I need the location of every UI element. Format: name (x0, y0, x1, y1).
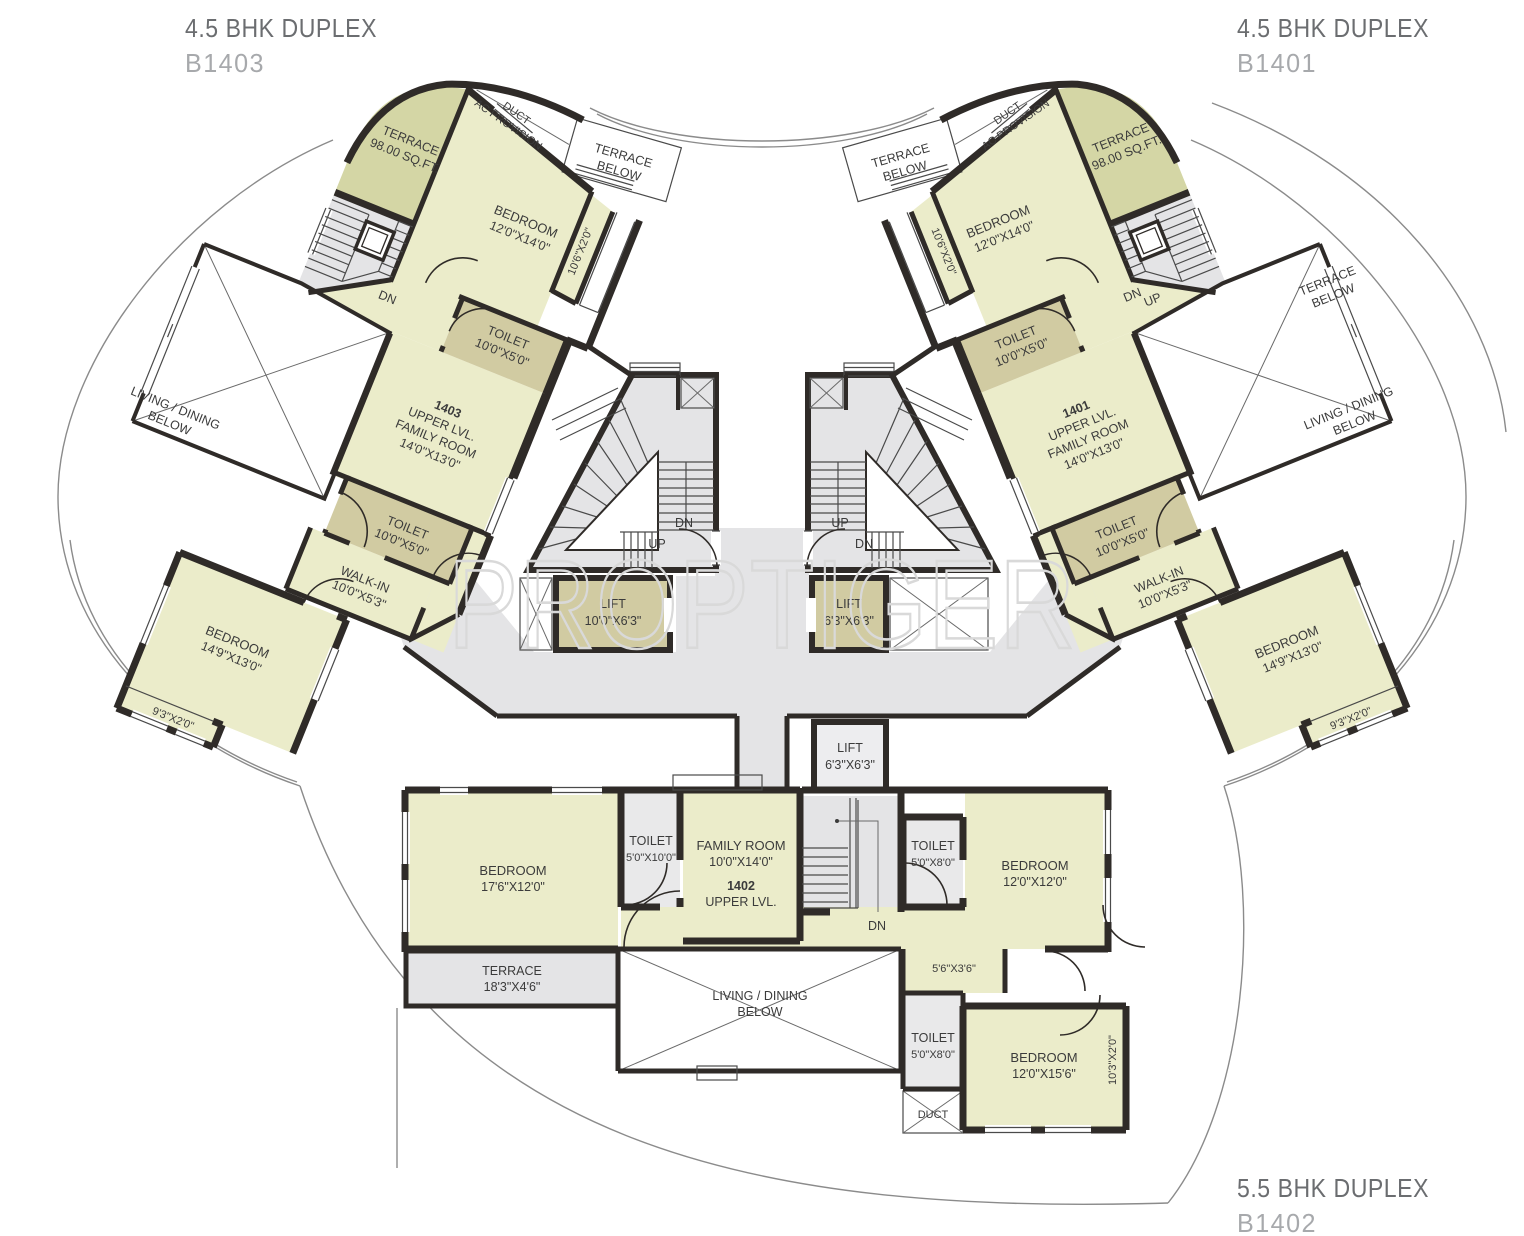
svg-text:DUCT: DUCT (918, 1109, 949, 1121)
svg-text:DN: DN (868, 919, 886, 933)
svg-text:UP: UP (831, 516, 848, 530)
svg-text:12'0"X15'6": 12'0"X15'6" (1012, 1067, 1076, 1081)
svg-text:DN: DN (675, 516, 693, 530)
svg-text:TOILET: TOILET (911, 1031, 955, 1045)
svg-text:5'0"X10'0": 5'0"X10'0" (626, 852, 676, 864)
svg-text:5'0"X8'0": 5'0"X8'0" (911, 857, 955, 869)
svg-text:PROPTIGER: PROPTIGER (448, 534, 1076, 675)
svg-text:5'0"X8'0": 5'0"X8'0" (911, 1049, 955, 1061)
svg-text:FAMILY ROOM: FAMILY ROOM (696, 838, 785, 853)
svg-text:17'6"X12'0": 17'6"X12'0" (481, 880, 545, 894)
svg-text:4.5 BHK DUPLEX: 4.5 BHK DUPLEX (185, 13, 377, 43)
svg-text:4.5 BHK DUPLEX: 4.5 BHK DUPLEX (1237, 13, 1429, 43)
svg-text:B1402: B1402 (1237, 1208, 1317, 1236)
svg-text:BELOW: BELOW (737, 1005, 782, 1019)
svg-text:UPPER LVL.: UPPER LVL. (705, 895, 776, 909)
svg-text:LIFT: LIFT (837, 741, 863, 755)
svg-text:TOILET: TOILET (629, 834, 673, 848)
svg-text:10'0"X14'0": 10'0"X14'0" (709, 855, 773, 869)
svg-text:TERRACE: TERRACE (482, 964, 542, 978)
svg-text:B1403: B1403 (185, 48, 265, 78)
svg-text:10'3"X2'0": 10'3"X2'0" (1107, 1035, 1119, 1085)
svg-text:18'3"X4'6": 18'3"X4'6" (484, 980, 541, 994)
svg-text:12'0"X12'0": 12'0"X12'0" (1003, 875, 1067, 889)
svg-text:B1401: B1401 (1237, 48, 1317, 78)
svg-text:6'3"X6'3": 6'3"X6'3" (825, 758, 875, 772)
svg-text:5'6"X3'6": 5'6"X3'6" (932, 963, 976, 975)
svg-text:BEDROOM: BEDROOM (479, 863, 546, 878)
svg-text:5.5 BHK DUPLEX: 5.5 BHK DUPLEX (1237, 1173, 1429, 1203)
svg-text:TOILET: TOILET (911, 839, 955, 853)
svg-text:BEDROOM: BEDROOM (1001, 858, 1068, 873)
svg-text:BEDROOM: BEDROOM (1010, 1050, 1077, 1065)
svg-text:LIVING / DINING: LIVING / DINING (712, 989, 807, 1003)
svg-text:1402: 1402 (727, 879, 755, 893)
